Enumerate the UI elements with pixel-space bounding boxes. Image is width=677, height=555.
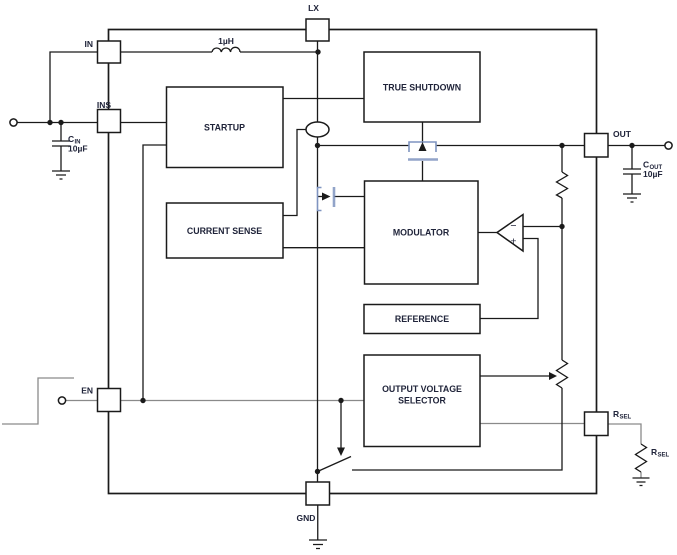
comparator-plus-sign: + — [510, 236, 516, 248]
rsel-ground-icon — [633, 478, 650, 486]
rsel-resistor-label: R — [651, 447, 657, 457]
pin-en-label: EN — [81, 386, 93, 396]
enable-terminal — [58, 397, 65, 404]
current-sensor — [306, 122, 329, 137]
startup-to-enable-wire — [143, 145, 167, 401]
output-capacitor-ground-icon — [623, 194, 641, 202]
output-capacitor — [623, 169, 641, 174]
rsel-resistor — [636, 444, 647, 472]
functional-block-diagram: − + STARTUP CURRENT SENSE TRUE SHUTDOWN … — [0, 0, 677, 555]
rsel-resistor-label-subscript: SEL — [658, 453, 670, 459]
output-capacitor-label: C — [643, 160, 649, 170]
modulator-label: MODULATOR — [393, 228, 450, 238]
schematic-canvas: − + STARTUP CURRENT SENSE TRUE SHUTDOWN … — [0, 0, 677, 555]
pin-rsel — [585, 412, 609, 436]
inductor-label: 1µH — [218, 36, 234, 46]
input-capacitor-ground-icon — [52, 171, 70, 179]
pin-out-label: OUT — [613, 129, 632, 139]
gnd-pin-ground-icon — [309, 540, 327, 549]
current-sense-label: CURRENT SENSE — [187, 226, 262, 236]
output-voltage-selector-label-line1: OUTPUT VOLTAGE — [382, 384, 462, 394]
switch-control-arrow — [337, 448, 345, 457]
feedback-resistor-top — [557, 172, 568, 198]
output-voltage-selector-label-line2: SELECTOR — [398, 396, 446, 406]
power-nfet — [318, 187, 335, 211]
comparator-minus-sign: − — [510, 220, 516, 232]
pin-in — [98, 41, 121, 63]
output-terminal — [665, 142, 672, 149]
reference-label: REFERENCE — [395, 314, 449, 324]
switch-blade — [318, 457, 352, 472]
pin-en — [98, 389, 121, 412]
in-pin-branch — [50, 52, 98, 123]
inductor — [212, 47, 240, 52]
pin-gnd — [306, 482, 330, 505]
rsel-external-wire — [608, 424, 641, 478]
true-shutdown-pfet — [408, 142, 438, 160]
pin-rsel-label: R — [613, 409, 619, 419]
input-capacitor-value: 10µF — [68, 144, 88, 154]
pin-ins — [98, 110, 121, 133]
pin-lx-label: LX — [308, 3, 319, 13]
variable-resistor-arrow — [549, 372, 557, 380]
pin-out — [585, 134, 609, 158]
pin-in-label: IN — [85, 39, 94, 49]
pfet-body-arrow — [419, 142, 427, 151]
pin-gnd-label: GND — [297, 513, 316, 523]
pin-ins-label: INS — [97, 100, 112, 110]
current-sensor-wire — [283, 130, 306, 216]
nfet-body-arrow — [322, 193, 331, 201]
input-terminal — [10, 119, 17, 126]
output-capacitor-value: 10µF — [643, 169, 663, 179]
true-shutdown-label: TRUE SHUTDOWN — [383, 83, 461, 93]
startup-label: STARTUP — [204, 123, 245, 133]
pin-lx — [306, 19, 329, 41]
pin-rsel-label-subscript: SEL — [620, 415, 632, 421]
variable-feedback-resistor — [557, 360, 568, 388]
comparator-plus-wire — [480, 239, 538, 319]
input-capacitor-label: C — [68, 134, 74, 144]
